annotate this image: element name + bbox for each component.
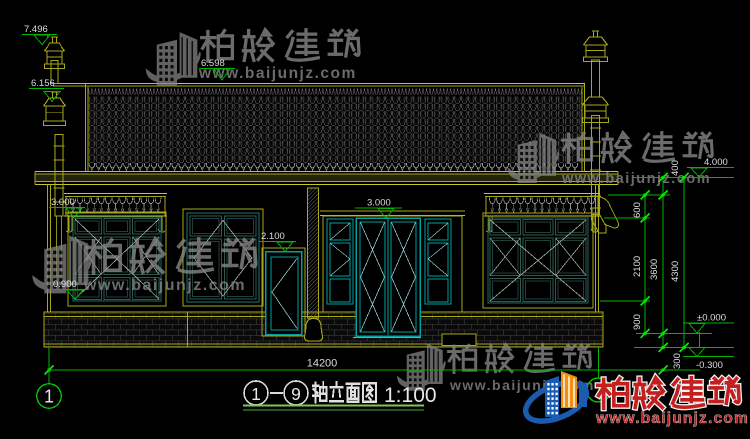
svg-text:2100: 2100 xyxy=(632,256,643,277)
svg-text:6.156: 6.156 xyxy=(31,78,55,89)
svg-text:3.000: 3.000 xyxy=(367,198,391,209)
svg-text:0.900: 0.900 xyxy=(53,279,77,290)
svg-text:7.496: 7.496 xyxy=(24,24,48,35)
svg-text:www.baijunjz.com: www.baijunjz.com xyxy=(83,277,246,294)
svg-text:4.000: 4.000 xyxy=(704,157,728,168)
svg-text:9: 9 xyxy=(291,384,301,404)
svg-text:2.100: 2.100 xyxy=(261,231,285,242)
svg-text:600: 600 xyxy=(632,202,643,218)
svg-text:www.baijunjz.com: www.baijunjz.com xyxy=(595,410,749,427)
svg-text:1:100: 1:100 xyxy=(384,384,437,407)
svg-text:4300: 4300 xyxy=(670,261,681,282)
svg-text:3.000: 3.000 xyxy=(51,197,75,208)
svg-text:1: 1 xyxy=(44,387,54,407)
svg-text:±0.000: ±0.000 xyxy=(697,313,726,324)
svg-text:1: 1 xyxy=(251,384,261,404)
svg-text:6.598: 6.598 xyxy=(201,58,225,69)
svg-text:400: 400 xyxy=(670,160,681,176)
svg-text:14200: 14200 xyxy=(307,358,338,370)
svg-text:300: 300 xyxy=(672,353,683,369)
svg-text:3600: 3600 xyxy=(649,259,660,280)
svg-text:-0.300: -0.300 xyxy=(696,360,723,371)
svg-text:900: 900 xyxy=(632,314,643,330)
